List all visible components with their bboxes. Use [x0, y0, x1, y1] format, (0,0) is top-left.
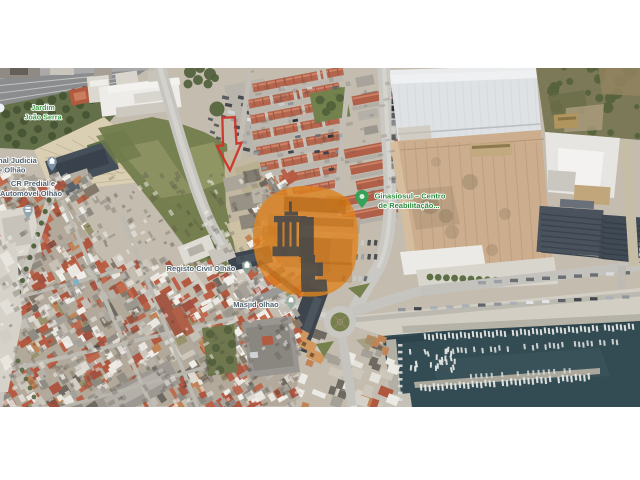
- svg-text:João Serra: João Serra: [24, 113, 62, 122]
- svg-text:Jardim: Jardim: [31, 103, 55, 112]
- svg-text:de Reabilitação...: de Reabilitação...: [378, 201, 439, 210]
- svg-text:Ginasiosul – Centro: Ginasiosul – Centro: [375, 192, 446, 201]
- svg-text:Masjid olhao: Masjid olhao: [233, 300, 279, 309]
- svg-text:nal Judicia: nal Judicia: [0, 156, 38, 165]
- svg-text:Automóvel Olhão: Automóvel Olhão: [0, 189, 62, 198]
- svg-text:CR Predial e: CR Predial e: [11, 179, 55, 188]
- svg-text:e Olhão: e Olhão: [0, 166, 26, 175]
- svg-text:Registo Civil Olhão: Registo Civil Olhão: [167, 264, 236, 273]
